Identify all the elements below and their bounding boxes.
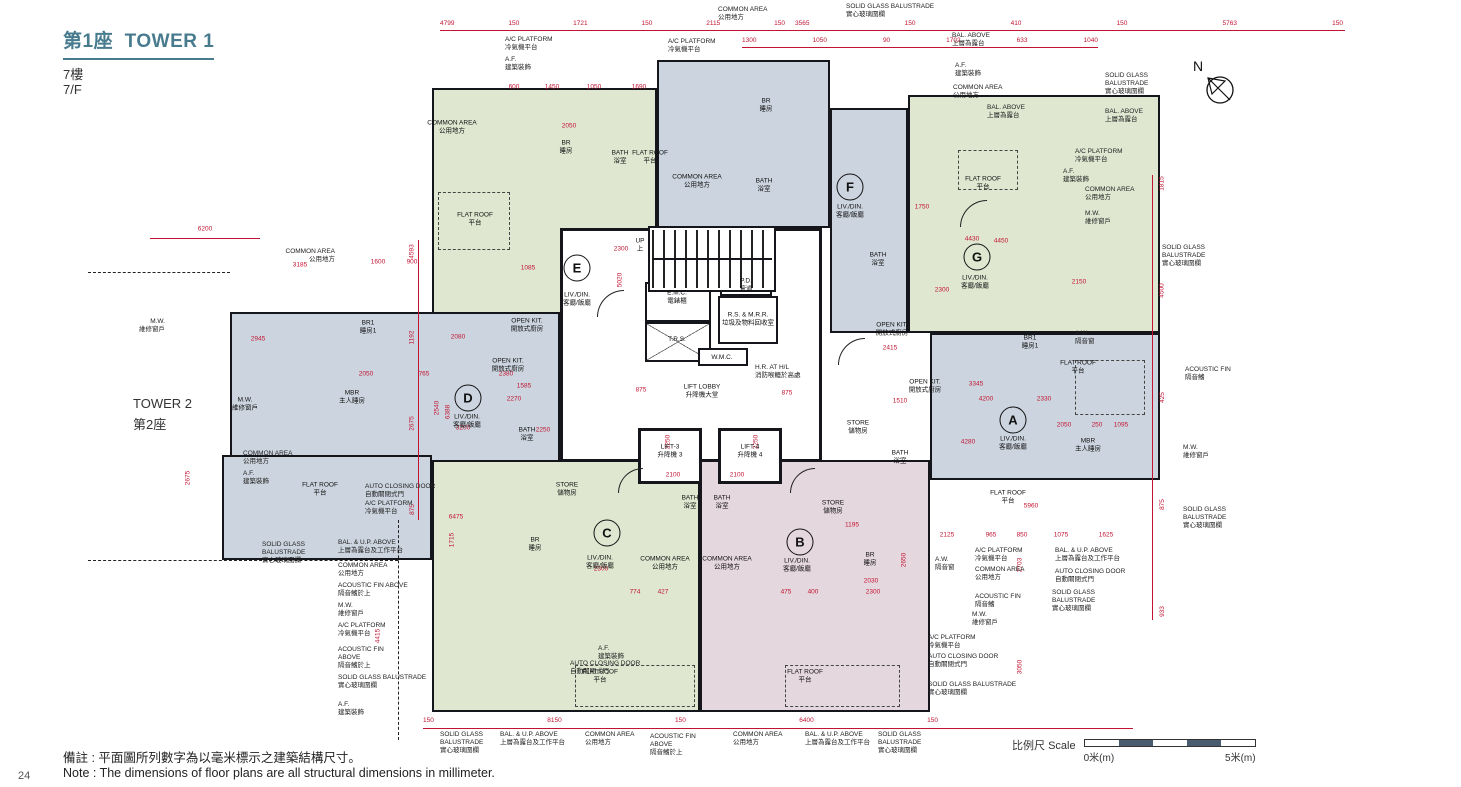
callout-afina: ACOUSTIC FINABOVE隔音鰭於上 [338,646,384,670]
callout-afin: ACOUSTIC FIN隔音鰭 [975,593,1021,609]
room-common-b: COMMON AREA公用地方 [702,556,751,573]
callout-acp: A/C PLATFORM冷氣機平台 [338,622,386,638]
room-wmc: W.M.C. [711,354,732,362]
dim: 4450 [994,238,1008,245]
callout-afina: ACOUSTIC FINABOVE隔音鰭於上 [650,733,696,757]
room-store-c: STORE儲物房 [556,482,578,499]
dim-strip-top3: 130010509017026331040 [742,37,1098,44]
unit-letter: F [846,180,854,195]
dim: 633 [1017,37,1028,44]
dim: 425 [1158,392,1165,403]
callout-bal: BAL. ABOVE上層為露台 [952,32,990,48]
unit-label-d: D [455,385,482,412]
scale-seg [1221,740,1255,746]
dim: 2675 [185,471,192,485]
room-lift4: LIFT-4升降機 4 [738,444,763,461]
dim: 774 [630,589,641,596]
dim: 4200 [979,396,993,403]
dim: 1050 [587,84,601,91]
room-bath-c: BATH浴室 [682,495,699,512]
dim: 2650 [901,553,908,567]
callout-mw: M.W.維修窗戶 [338,602,364,618]
callout-afina: ACOUSTIC FIN ABOVE隔音鰭於上 [338,582,408,598]
callout-acp: A/C PLATFORM冷氣機平台 [975,547,1023,563]
scale-seg [1119,740,1153,746]
room-common-center: COMMON AREA公用地方 [672,174,721,191]
dim: 6475 [449,514,463,521]
callout-ca: COMMON AREA公用地方 [1085,186,1134,202]
room-rs-mrr: R.S. & M.R.R.垃圾及物料回收室 [722,312,774,329]
room-openkit-d: OPEN KIT.開放式廚房 [492,358,525,375]
stairs-midline [652,258,772,260]
dim: 850 [1017,532,1028,539]
callout-acp: A/C PLATFORM冷氣機平台 [1075,148,1123,164]
room-flatroof-a: FLAT ROOF平台 [990,490,1026,507]
room-bath-a: BATH浴室 [892,450,909,467]
dim-strip-top2: 35651504101505763150 [795,20,1343,27]
callout-acd: AUTO CLOSING DOOR自動關閉式門 [570,660,640,676]
room-flatroof-a2: FLAT ROOF平台 [1060,360,1096,377]
dim: 8150 [547,717,561,724]
dim: 6200 [198,226,212,233]
callout-sgb2: SOLID GLASSBALUSTRADE實心玻璃圍欄 [1052,589,1095,613]
unit-label-c: C [594,520,621,547]
dim: 3565 [795,20,809,27]
callout-af: A.F.建築裝飾 [338,701,364,717]
dim: 2540 [434,401,441,415]
dim: 6400 [799,717,813,724]
dim: 1040 [1084,37,1098,44]
room-store-a: STORE儲物房 [847,420,869,437]
dim: 2270 [507,396,521,403]
room-openkit-e: OPEN KIT.開放式廚房 [511,318,544,335]
zone-unit-g [908,95,1160,333]
unit-letter: E [573,261,582,276]
dim: 2100 [666,472,680,479]
room-livdin-c: LIV./DIN.客廳/飯廳 [586,555,614,572]
dim: 150 [1332,20,1343,27]
room-flatroof-g: FLAT ROOF平台 [965,176,1001,193]
room-flatroof-left: FLAT ROOF平台 [302,482,338,499]
dim: 1095 [1114,422,1128,429]
callout-sgb2: SOLID GLASSBALUSTRADE實心玻璃圍欄 [262,541,305,565]
room-common-nw: COMMON AREA公用地方 [427,120,476,137]
unit-label-a: A [1000,407,1027,434]
room-lift3: LIFT-3升降機 3 [658,444,683,461]
room-bath-top: BATH浴室 [612,150,629,167]
dim: 3345 [969,381,983,388]
scale-bar-segments [1084,739,1256,747]
callout-sgb2: SOLID GLASSBALUSTRADE實心玻璃圍欄 [878,731,921,755]
dim-strip-left: 459311922675875 [405,248,419,513]
dim: 5763 [1223,20,1237,27]
callout-acd: AUTO CLOSING DOOR自動關閉式門 [1055,568,1125,584]
dim: 1600 [371,259,385,266]
dim: 475 [781,589,792,596]
unit-letter: A [1008,413,1017,428]
dim: 1585 [517,383,531,390]
dim: 2675 [409,416,416,430]
dim-line-bottom [423,728,1133,729]
title-zh: 第1座 [63,31,113,52]
dim: 933 [1158,606,1165,617]
dim: 875 [636,387,647,394]
lot-line-left-upper [88,272,230,273]
floor-label-en: 7/F [63,82,82,97]
dim: 1715 [449,533,456,547]
room-flatroof-b2: FLAT ROOF平台 [787,669,823,686]
dim: 1510 [893,398,907,405]
room-up: UP上 [635,238,644,255]
room-livdin-e: LIV./DIN.客廳/飯廳 [563,292,591,309]
dim: 1750 [915,204,929,211]
tower2-label-zh: 第2座 [133,414,166,433]
scale-seg [1085,740,1119,746]
dim: 250 [1092,422,1103,429]
unit-label-e: E [564,255,591,282]
unit-letter: G [972,250,982,265]
callout-ca: COMMON AREA公用地方 [733,731,782,747]
dim: 427 [658,589,669,596]
room-livdin-g: LIV./DIN.客廳/飯廳 [961,275,989,292]
dim: 150 [508,20,519,27]
dim: 6388 [445,405,452,419]
dim: 4430 [965,236,979,243]
dim: 1625 [1099,532,1113,539]
room-bath-f: BATH浴室 [870,252,887,269]
dim: 765 [419,371,430,378]
dim: 150 [905,20,916,27]
title-en: TOWER 1 [125,31,215,52]
room-livdin-d: LIV./DIN.客廳/飯廳 [453,414,481,431]
room-br1-d: BR1睡房1 [360,320,377,337]
dim: 2030 [864,578,878,585]
dim: 1721 [573,20,587,27]
unit-label-b: B [787,529,814,556]
zone-top-center [657,60,830,228]
callout-bal: BAL. ABOVE上層為露台 [987,104,1025,120]
unit-label-f: F [837,174,864,201]
callout-af: A.F.建築裝飾 [243,470,269,486]
dim: 2250 [536,427,550,434]
callout-sgb: SOLID GLASS BALUSTRADE實心玻璃圍欄 [338,674,426,690]
room-br-f: BR睡房 [760,98,773,115]
unit-letter: C [602,526,611,541]
room-bath-f2: BATH浴室 [756,178,773,195]
room-openkit-g2: OPEN KIT.開放式廚房 [909,379,942,396]
dim: 2150 [1072,279,1086,286]
callout-ca: COMMON AREA公用地方 [975,566,1024,582]
dim: 150 [641,20,652,27]
dim: 150 [927,717,938,724]
callout-ca: COMMON AREA公用地方 [718,6,767,22]
room-common-c: COMMON AREA公用地方 [640,556,689,573]
scale-seg [1187,740,1221,746]
callout-balup: BAL. & U.P. ABOVE上層為露台及工作平台 [1055,547,1120,563]
room-br-top: BR睡房 [560,140,573,157]
callout-bal: BAL. ABOVE上層為露台 [1105,108,1143,124]
callout-acp: A/C PLATFORM冷氣機平台 [505,36,553,52]
door-arc [838,338,865,365]
dim: 2100 [730,472,744,479]
room-br-b: BR睡房 [864,552,877,569]
unit-label-g: G [964,244,991,271]
callout-aw: A.W.隔音窗 [1075,330,1095,346]
dim: 1815 [1159,176,1166,190]
tower2-label-en: TOWER 2 [133,396,192,411]
callout-balup: BAL. & U.P. ABOVE上層為露台及工作平台 [338,539,403,555]
dim: 2300 [614,246,628,253]
callout-acp: A/C PLATFORM冷氣機平台 [365,500,413,516]
callout-mw: M.W.維修窗戶 [972,611,998,627]
callout-aw: A.W.隔音窗 [935,556,955,572]
dim: 1690 [632,84,646,91]
dim: 1300 [742,37,756,44]
dim: 2415 [883,345,897,352]
callout-af: A.F.建築裝飾 [1063,168,1089,184]
dim: 150 [675,717,686,724]
callout-sgb2: SOLID GLASSBALUSTRADE實心玻璃圍欄 [440,731,483,755]
callout-af: A.F.建築裝飾 [598,645,624,661]
callout-sgb: SOLID GLASS BALUSTRADE實心玻璃圍欄 [846,3,934,19]
dim-line-6200 [150,238,260,239]
dim: 2050 [562,123,576,130]
dim: 2300 [935,287,949,294]
dim: 2300 [866,589,880,596]
room-flatroof-c1: FLAT ROOF平台 [632,150,668,167]
dim: 2080 [451,334,465,341]
callout-af: A.F.建築裝飾 [955,62,981,78]
dim: 900 [407,259,418,266]
dim: 600 [509,84,520,91]
callout-balup: BAL. & U.P. ABOVE上層為露台及工作平台 [500,731,565,747]
room-lift-lobby: LIFT LOBBY升降機大堂 [684,384,721,401]
dim: 875 [1158,499,1165,510]
callout-sgb2: SOLID GLASSBALUSTRADE實心玻璃圍欄 [1105,72,1148,96]
dim: 965 [986,532,997,539]
dim: 400 [808,589,819,596]
page-number: 24 [18,770,30,782]
scale-end: 5米(m) [1225,749,1256,764]
dim-line-top2 [742,47,1098,48]
room-hr: H.R. AT H/L消防喉轆於高處 [755,364,801,380]
dim: 1192 [408,331,415,345]
floorplan-page: { "header": {"title_zh":"第1座","title_en"… [0,0,1461,787]
dim: 1050 [812,37,826,44]
room-emc: E.M.C.電錶櫃 [667,290,687,307]
callout-ca: COMMON AREA公用地方 [585,731,634,747]
callout-ca: COMMON AREA公用地方 [286,248,335,264]
callout-ca: COMMON AREA公用地方 [338,562,387,578]
dim: 150 [1117,20,1128,27]
room-openkit-g1: OPEN KIT.開放式廚房 [876,322,909,339]
dim: 1075 [1054,532,1068,539]
scale-bar-graphic: 0米(m) 5米(m) [1076,737,1256,747]
dim: 150 [423,717,434,724]
callout-afin: ACOUSTIC FIN隔音鰭 [1185,366,1231,382]
callout-acd: AUTO CLOSING DOOR自動關閉式門 [928,653,998,669]
dim: 4500 [1159,283,1166,297]
callout-balup: BAL. & U.P. ABOVE上層為露台及工作平台 [805,731,870,747]
north-arrow-icon [1200,70,1238,108]
dim: 1085 [521,265,535,272]
callout-mw: M.W.維修窗戶 [1183,444,1209,460]
dim: 410 [1011,20,1022,27]
dim: 875 [782,390,793,397]
room-livdin-b: LIV./DIN.客廳/飯廳 [783,558,811,575]
callout-acp: A/C PLATFORM冷氣機平台 [668,38,716,54]
room-bath-b: BATH浴室 [714,495,731,512]
dim: 3050 [1017,660,1024,674]
dim-line-top [440,30,1345,31]
callout-mw: M.W.維修窗戶 [1085,210,1111,226]
room-mbr-d: MBR主人睡房 [339,390,365,407]
scale-label: 比例尺 Scale [1012,737,1076,753]
floor-label-zh: 7樓 [63,64,83,83]
note-zh: 備註 : 平面圖所列數字為以毫米標示之建築結構尺寸。 [63,747,361,766]
dim-line-right [1152,175,1153,620]
dim: 2125 [940,532,954,539]
room-mw-left: M.W.維修窗戶 [232,397,258,414]
dim: 2050 [1057,422,1071,429]
room-mbr-a: MBR主人睡房 [1075,438,1101,455]
scale-start: 0米(m) [1084,749,1115,764]
page-title: 第1座 TOWER 1 [63,26,214,60]
callout-acd: AUTO CLOSING DOOR自動關閉式門 [365,483,435,499]
scale-seg [1153,740,1187,746]
room-store-b: STORE儲物房 [822,500,844,517]
dim: 1450 [545,84,559,91]
callout-ca: COMMON AREA公用地方 [953,84,1002,100]
callout-af: A.F.建築裝飾 [505,56,531,72]
room-br-c: BR睡房 [529,537,542,554]
callout-sgb2: SOLID GLASSBALUSTRADE實心玻璃圍欄 [1183,506,1226,530]
dim: 4593 [409,244,416,258]
room-bath-d: BATH浴室 [519,427,536,444]
callout-acp: A/C PLATFORM冷氣機平台 [928,634,976,650]
callout-sgb2: SOLID GLASSBALUSTRADE實心玻璃圍欄 [1162,244,1205,268]
dim: 2050 [359,371,373,378]
unit-letter: B [795,535,804,550]
callout-sgb: SOLID GLASS BALUSTRADE實心玻璃圍欄 [928,681,1016,697]
dim: 2945 [251,336,265,343]
callout-ca: COMMON AREA公用地方 [243,450,292,466]
room-livdin-f: LIV./DIN.客廳/飯廳 [836,204,864,221]
room-trs: T.R.S. [668,336,686,344]
dim: 90 [883,37,890,44]
dim: 5020 [617,273,624,287]
dim: 4280 [961,439,975,446]
room-pd: P.D.管道 [740,278,753,295]
dim-strip-bottom: 15081501506400150 [423,717,938,724]
lot-line-left-lower [88,560,398,561]
dim: 150 [774,20,785,27]
room-livdin-a: LIV./DIN.客廳/飯廳 [999,436,1027,453]
room-br1-g: BR1睡房1 [1022,335,1039,352]
note-en: Note : The dimensions of floor plans are… [63,766,495,780]
scale-bar: 比例尺 Scale 0米(m) 5米(m) [1012,737,1256,753]
callout-mw: M.W.維修窗戶 [139,318,165,334]
dim: 2330 [1037,396,1051,403]
room-flatroof-nw: FLAT ROOF平台 [457,212,493,229]
unit-letter: D [463,391,472,406]
dim: 1195 [845,522,859,529]
dim: 4799 [440,20,454,27]
zone-unit-f [830,108,908,333]
